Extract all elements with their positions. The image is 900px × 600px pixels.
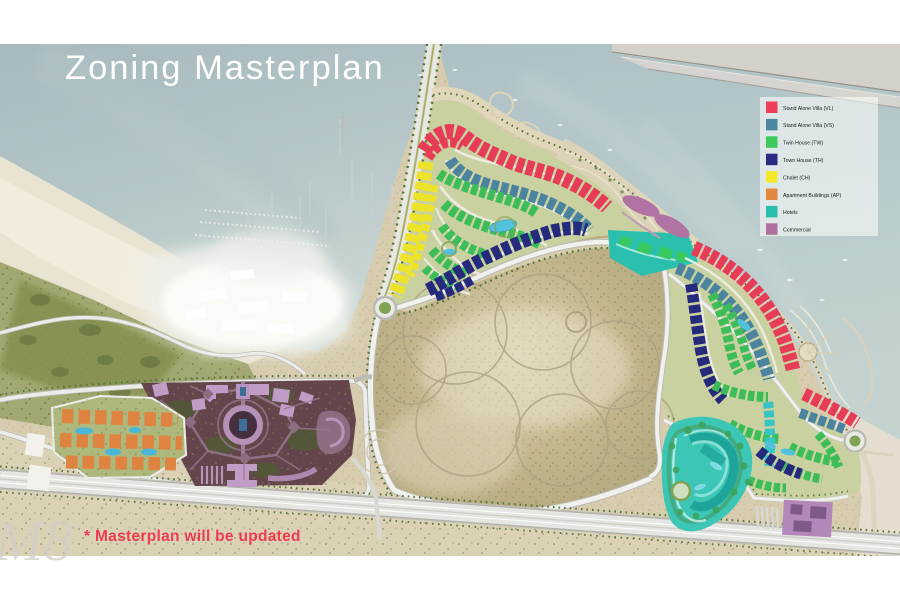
- svg-text:Town House (TH): Town House (TH): [783, 158, 824, 164]
- svg-text:Twin House (TW): Twin House (TW): [783, 141, 823, 147]
- svg-text:* Masterplan will be updated: * Masterplan will be updated: [84, 528, 301, 545]
- svg-text:Apartment Buildings (AP): Apartment Buildings (AP): [783, 193, 842, 199]
- svg-text:Stand Alone Villa (VL): Stand Alone Villa (VL): [783, 106, 834, 112]
- svg-text:Chalet (CH): Chalet (CH): [783, 175, 811, 181]
- svg-text:Stand Alone Villa (VS): Stand Alone Villa (VS): [783, 123, 834, 129]
- svg-text:Hotels: Hotels: [783, 210, 798, 216]
- svg-text:Commercial: Commercial: [783, 228, 811, 234]
- svg-text:Zoning Masterplan: Zoning Masterplan: [65, 49, 385, 87]
- svg-text:M8: M8: [0, 508, 72, 573]
